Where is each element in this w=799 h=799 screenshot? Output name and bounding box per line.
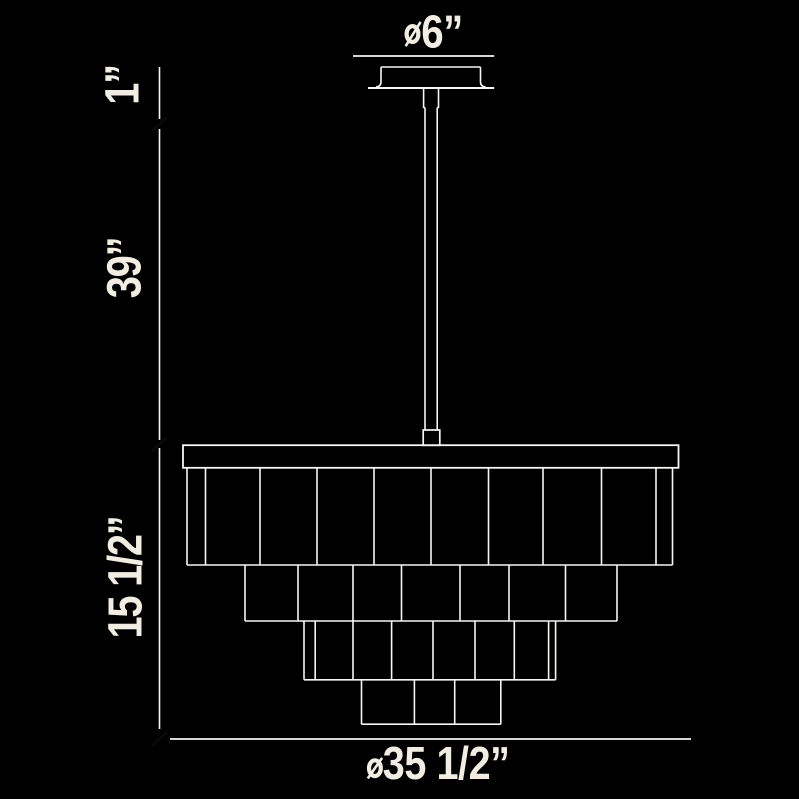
svg-text:1”: 1” — [96, 65, 149, 105]
svg-text:6”: 6” — [421, 7, 463, 58]
svg-text:35 1/2”: 35 1/2” — [383, 738, 510, 789]
svg-text:39”: 39” — [98, 238, 151, 298]
svg-text:15 1/2”: 15 1/2” — [99, 517, 152, 639]
